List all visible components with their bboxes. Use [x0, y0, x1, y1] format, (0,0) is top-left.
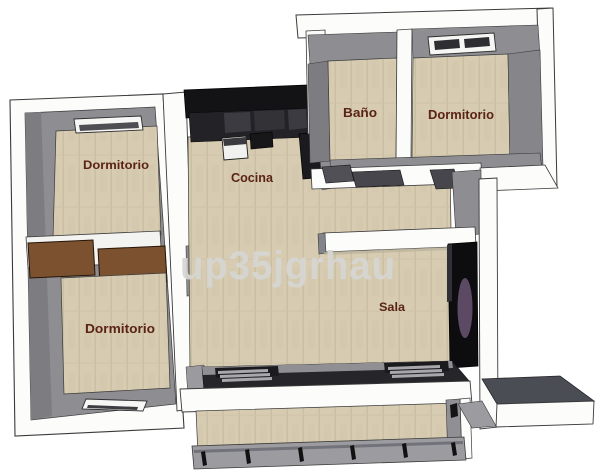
- living-room-corner-wall: [452, 170, 481, 236]
- kitchen-counter-corner: [288, 109, 307, 130]
- label-bathroom: Baño: [343, 105, 377, 120]
- closet-door-left: [28, 240, 95, 278]
- bedroom-top-right-east-wall: [508, 50, 543, 169]
- bedroom-top-right-floor: [412, 54, 510, 159]
- bathroom-west-wall-face: [308, 61, 330, 163]
- watermark-text: up35jgrhau: [180, 244, 396, 288]
- media-wall-edge: [447, 244, 452, 302]
- label-bedroom-top-left: Dormitorio: [83, 158, 149, 172]
- door-lintel-kitchen: [322, 165, 354, 183]
- kitchen-sink-unit: [254, 110, 285, 131]
- label-living-room: Sala: [379, 300, 405, 314]
- label-kitchen: Cocina: [231, 171, 274, 185]
- media-wall-accent-oval: [458, 278, 473, 338]
- floorplan-image: Dormitorio Dormitorio Cocina Baño Dormit…: [0, 0, 602, 472]
- left-wing-bedrooms: [10, 94, 184, 436]
- divider-wall: [396, 29, 412, 163]
- door-lintel-bathroom: [352, 170, 404, 187]
- kitchen-cooktop: [224, 112, 251, 133]
- bedroom-top-left-floor: [53, 126, 161, 239]
- floorplan-render: Dormitorio Dormitorio Cocina Baño Dormit…: [0, 0, 602, 472]
- label-bedroom-top-right: Dormitorio: [428, 108, 494, 122]
- balcony-corner-post: [450, 403, 458, 418]
- label-bedroom-bottom-left: Dormitorio: [85, 322, 155, 336]
- kitchen-oven: [250, 132, 273, 149]
- slab-front: [496, 401, 594, 427]
